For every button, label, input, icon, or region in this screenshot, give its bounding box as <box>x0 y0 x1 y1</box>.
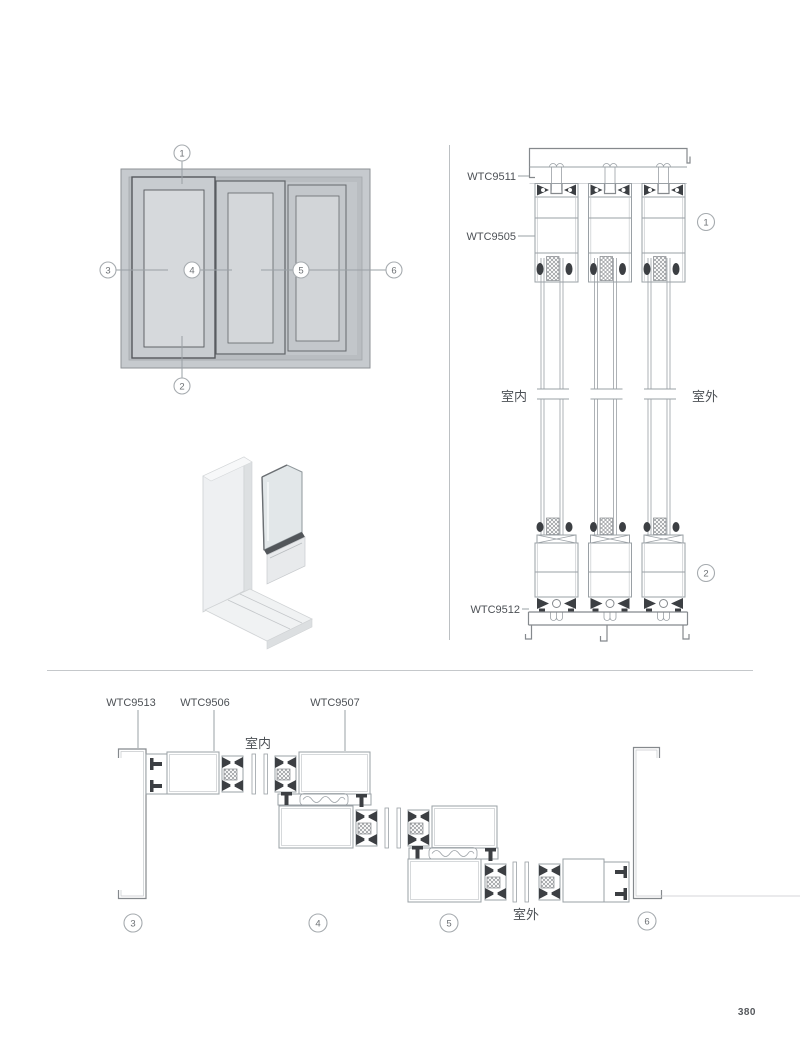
svg-text:WTC9512: WTC9512 <box>470 604 520 616</box>
svg-text:5: 5 <box>446 919 451 930</box>
catalog-page: { "page": { "number": "380" }, "colors":… <box>0 0 800 1042</box>
callout-section-5: 5 <box>440 914 458 932</box>
indoor-label: 室内 <box>501 389 527 404</box>
svg-text:1: 1 <box>179 149 184 160</box>
callout-2: 2 <box>174 378 190 394</box>
sill-frame-profile <box>526 612 690 641</box>
svg-text:6: 6 <box>644 917 649 928</box>
label-interlock: WTC9507 <box>310 697 360 709</box>
outdoor-label: 室外 <box>513 907 539 922</box>
svg-text:4: 4 <box>315 919 320 930</box>
left-jamb-profile <box>119 749 147 899</box>
svg-text:4: 4 <box>189 266 194 277</box>
svg-text:WTC9505: WTC9505 <box>466 231 516 243</box>
sash-panel-2 <box>216 181 285 354</box>
glass-pane-2 <box>228 193 273 343</box>
sash-row-3 <box>408 859 629 902</box>
svg-text:1: 1 <box>703 218 708 229</box>
profile-3d-photo <box>170 440 330 645</box>
interlock-step-1 <box>278 792 371 807</box>
svg-text:3: 3 <box>105 266 110 277</box>
callout-section-6: 6 <box>638 912 656 930</box>
callout-1: 1 <box>174 145 190 161</box>
callout-3: 3 <box>100 262 116 278</box>
aluminum-corner-sample <box>203 457 312 649</box>
horizontal-section-diagram: WTC9513 WTC9506 WTC9507 室内 室外 3 4 5 6 <box>40 668 760 948</box>
window-elevation-diagram: 1 2 3 4 5 6 <box>90 140 410 402</box>
indoor-label: 室内 <box>245 736 271 751</box>
svg-text:2: 2 <box>703 569 708 580</box>
callout-section-2: 2 <box>698 565 715 582</box>
sash-column-2 <box>589 164 632 621</box>
svg-text:6: 6 <box>391 266 396 277</box>
label-sash: WTC9505 <box>466 231 535 243</box>
callout-6: 6 <box>386 262 402 278</box>
sash-row-2 <box>279 806 497 848</box>
callout-section-3: 3 <box>124 914 142 932</box>
right-jamb-profile <box>634 748 800 899</box>
callout-section-1: 1 <box>698 214 715 231</box>
callout-5: 5 <box>293 262 309 278</box>
sash-panel-1 <box>132 177 215 358</box>
sash-column-3 <box>642 164 685 621</box>
callout-4: 4 <box>184 262 200 278</box>
svg-text:2: 2 <box>179 382 184 393</box>
svg-text:3: 3 <box>130 919 135 930</box>
sash-column-1 <box>535 164 578 621</box>
svg-text:WTC9511: WTC9511 <box>467 171 516 183</box>
outdoor-label: 室外 <box>692 389 718 404</box>
sash-row-1 <box>146 752 370 794</box>
label-head-frame: WTC9511 <box>467 171 529 183</box>
svg-text:5: 5 <box>298 266 303 277</box>
vertical-section-diagram: WTC9511 WTC9505 WTC9512 室内 室外 1 2 <box>440 140 760 650</box>
page-number: 380 <box>726 1007 756 1018</box>
label-sill-frame: WTC9512 <box>470 604 529 616</box>
label-jamb: WTC9513 <box>106 697 156 709</box>
callout-section-4: 4 <box>309 914 327 932</box>
label-sash: WTC9506 <box>180 697 230 709</box>
label-leader-lines <box>138 710 345 751</box>
